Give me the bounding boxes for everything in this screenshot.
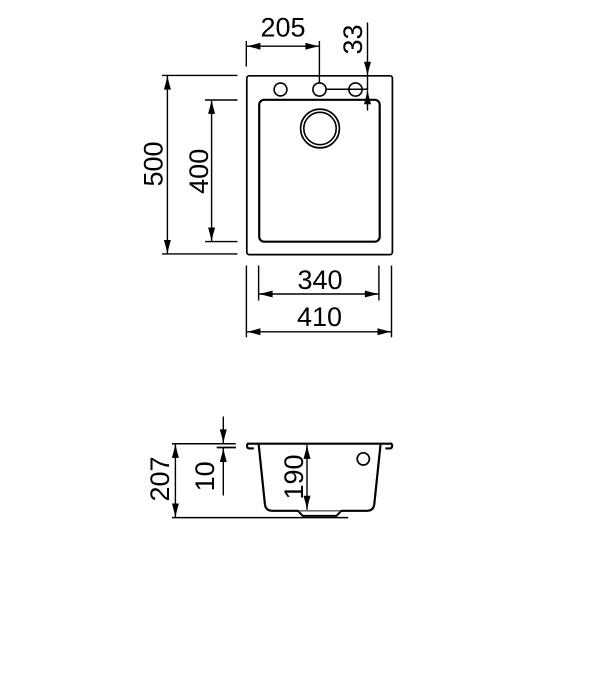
svg-text:205: 205	[260, 13, 305, 43]
svg-text:400: 400	[184, 149, 214, 194]
svg-text:410: 410	[297, 302, 342, 332]
svg-text:190: 190	[279, 454, 309, 499]
svg-text:500: 500	[138, 141, 168, 186]
svg-text:340: 340	[297, 265, 342, 295]
svg-text:10: 10	[190, 461, 220, 491]
svg-text:207: 207	[145, 456, 175, 501]
svg-text:33: 33	[338, 24, 368, 54]
